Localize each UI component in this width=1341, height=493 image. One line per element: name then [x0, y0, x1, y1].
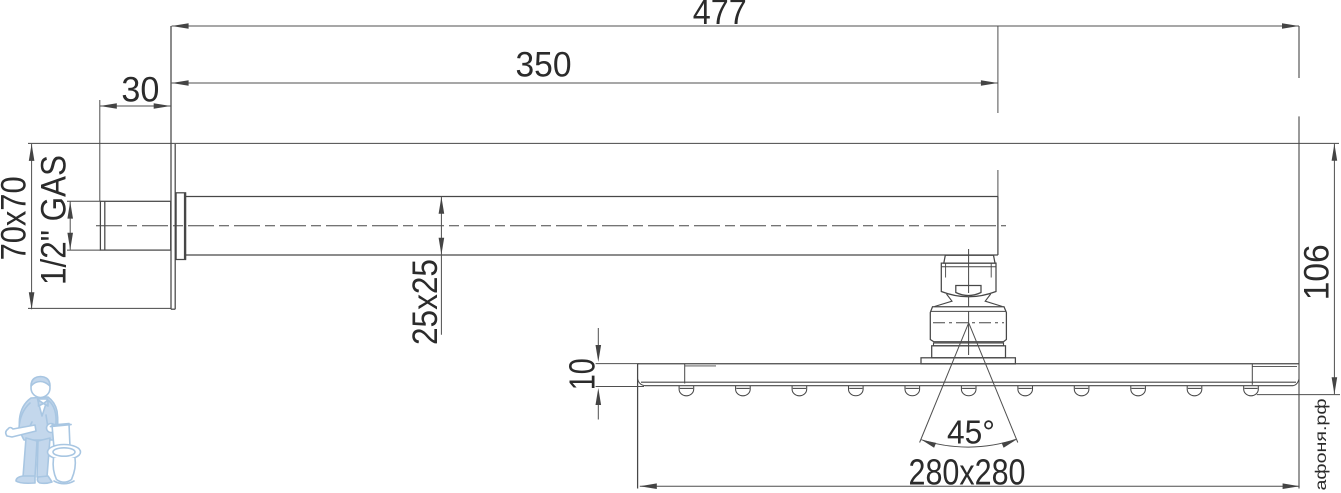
svg-text:477: 477	[693, 0, 747, 32]
svg-text:106: 106	[1297, 244, 1336, 300]
svg-text:45°: 45°	[947, 414, 995, 451]
svg-text:30: 30	[121, 70, 159, 109]
svg-text:10: 10	[561, 358, 602, 390]
svg-text:70x70: 70x70	[0, 176, 34, 260]
svg-text:280x280: 280x280	[909, 452, 1026, 493]
svg-text:350: 350	[516, 45, 572, 84]
svg-text:афоня.рф: афоня.рф	[1313, 399, 1330, 491]
svg-text:25x25: 25x25	[406, 259, 445, 345]
svg-text:1/2" GAS: 1/2" GAS	[35, 155, 74, 285]
